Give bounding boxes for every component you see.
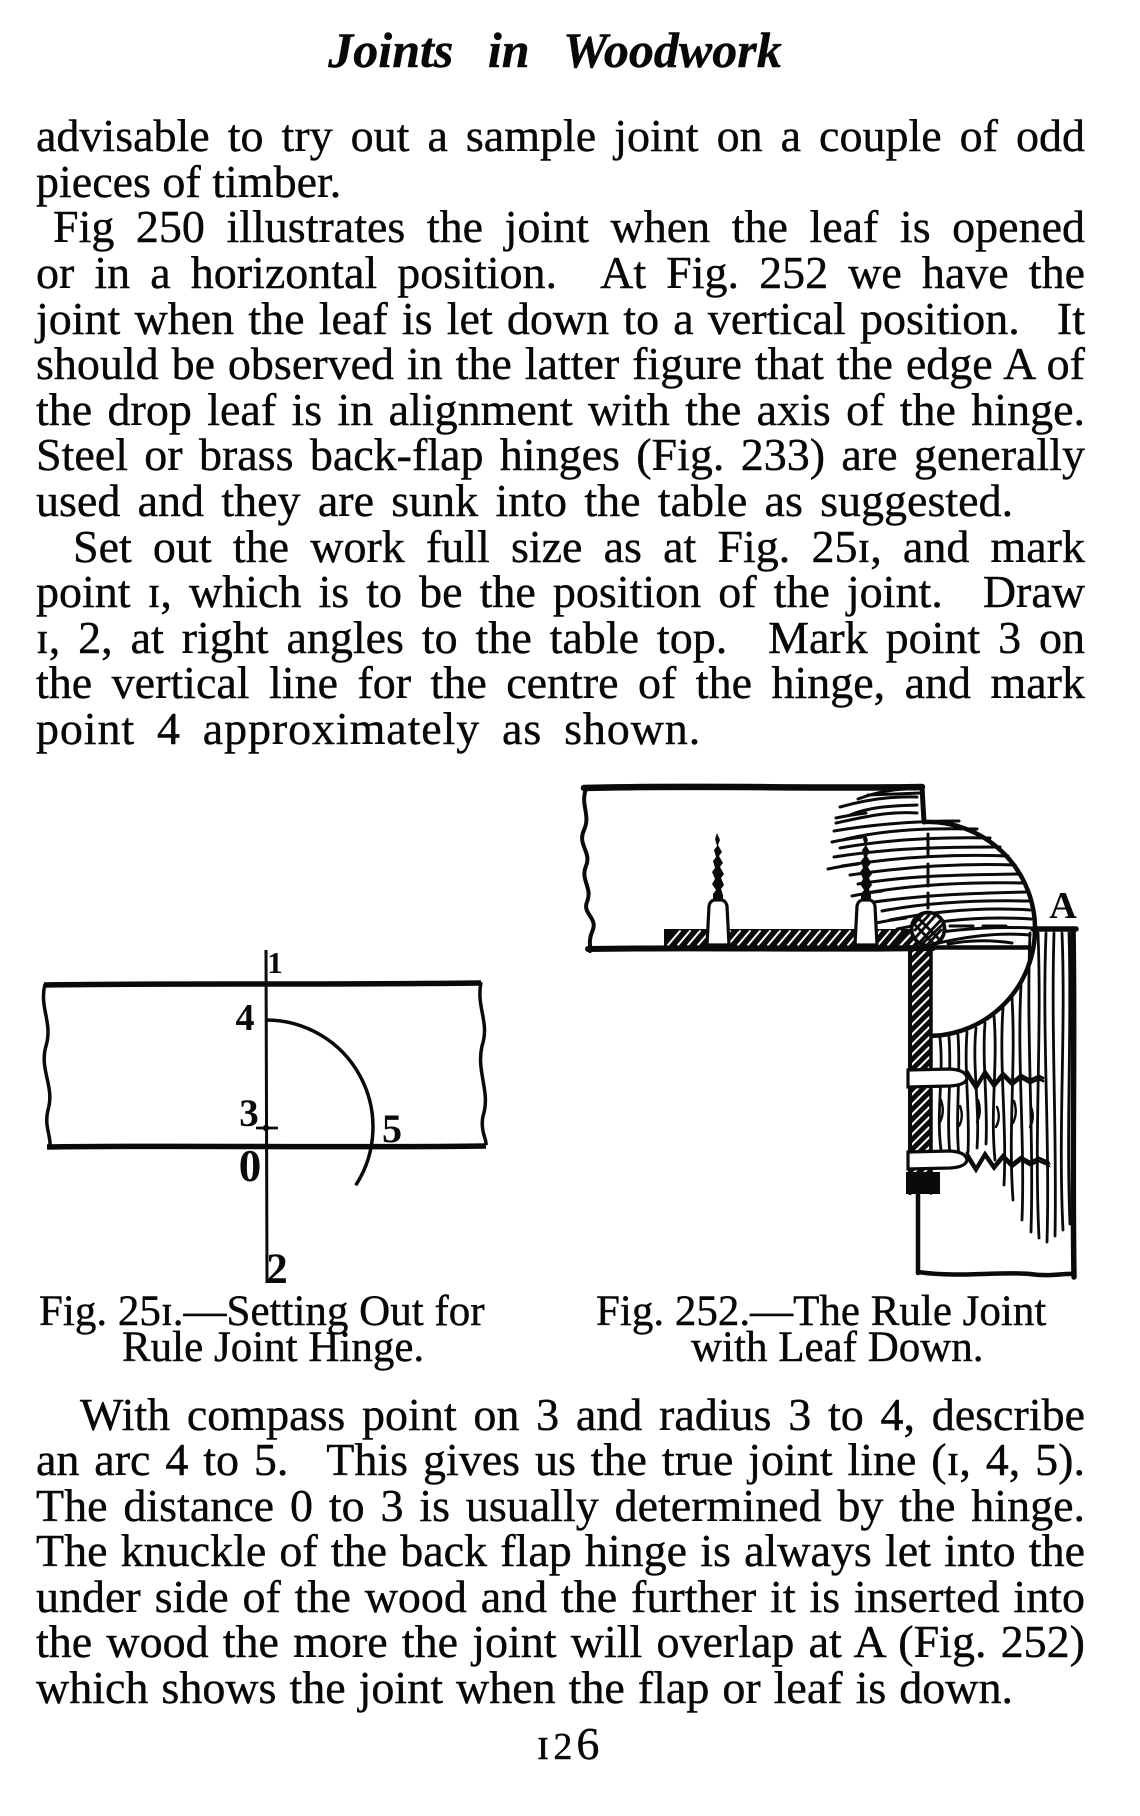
svg-text:4: 4 xyxy=(236,997,255,1039)
svg-text:5: 5 xyxy=(382,1106,402,1151)
svg-text:A: A xyxy=(1049,885,1077,927)
svg-text:2: 2 xyxy=(266,1246,288,1293)
svg-text:0: 0 xyxy=(239,1141,262,1191)
svg-text:1: 1 xyxy=(267,945,283,980)
svg-text:3: 3 xyxy=(239,1092,259,1135)
